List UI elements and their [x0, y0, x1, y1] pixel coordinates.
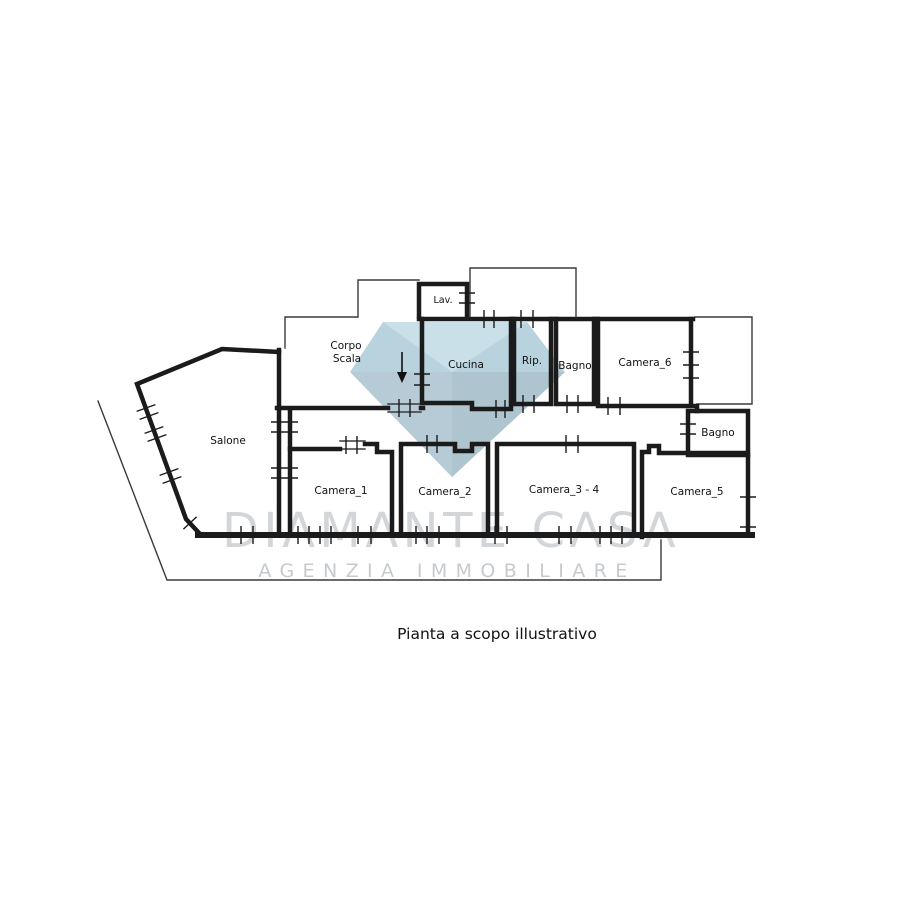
floorplan-image: DIAMANTE CASA AGENZIA IMMOBILIARE Lav. C… [0, 0, 900, 912]
room-label-cucina: Cucina [448, 359, 484, 371]
room-label-camera-3-4: Camera_3 - 4 [529, 484, 600, 496]
room-label-camera-1: Camera_1 [314, 485, 367, 497]
floorplan-svg: DIAMANTE CASA AGENZIA IMMOBILIARE Lav. C… [0, 0, 900, 912]
room-label-lav: Lav. [433, 295, 452, 306]
watermark-tagline-text: AGENZIA IMMOBILIARE [258, 560, 635, 582]
plan-caption: Pianta a scopo illustrativo [397, 625, 597, 643]
room-label-corpo: Corpo [330, 340, 361, 352]
room-label-scala: Scala [333, 353, 361, 365]
room-label-salone: Salone [210, 435, 246, 447]
room-label-bagno-top: Bagno [558, 360, 591, 372]
room-label-camera-2: Camera_2 [418, 486, 471, 498]
room-label-rip: Rip. [522, 355, 542, 367]
room-label-camera-6: Camera_6 [618, 357, 671, 369]
room-label-bagno-right: Bagno [701, 427, 734, 439]
room-label-camera-5: Camera_5 [670, 486, 723, 498]
